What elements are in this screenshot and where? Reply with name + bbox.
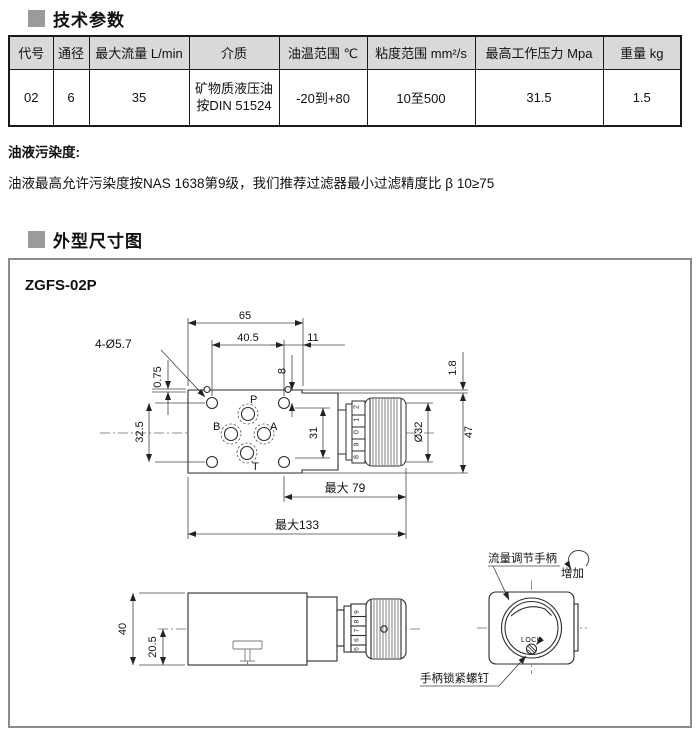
increase-direction-arrow [568, 550, 588, 569]
dim-40-5: 40.5 [237, 332, 258, 344]
svg-text:5: 5 [354, 647, 361, 651]
lock-label: LOCK [521, 637, 542, 644]
table-header-row: 代号 通径 最大流量 L/min 介质 油温范围 ℃ 粘度范围 mm²/s 最高… [9, 36, 681, 69]
header-cell-maxflow: 最大流量 L/min [89, 36, 189, 69]
port-p-label: P [250, 394, 257, 406]
svg-text:8: 8 [354, 619, 361, 623]
section-header-params: 技术参数 [28, 6, 125, 31]
contamination-note: 油液污染度: 油液最高允许污染度按NAS 1638第9级，我们推荐过滤器最小过滤… [8, 141, 668, 192]
svg-text:2: 2 [354, 405, 361, 409]
side-view-drawing: 9 8 7 6 5 40 20.5 [117, 593, 420, 665]
dim-8: 8 [277, 368, 289, 374]
header-cell-diameter: 通径 [53, 36, 89, 69]
svg-text:1: 1 [354, 417, 361, 421]
dim-32-5: 32.5 [134, 421, 146, 442]
handle-front [489, 592, 578, 664]
increase-label: 增加 [561, 566, 584, 580]
port-t-label: T [252, 461, 259, 473]
dimension-drawing: ZGFS-02P [10, 260, 690, 726]
svg-text:8: 8 [354, 455, 361, 459]
svg-text:9: 9 [354, 442, 361, 446]
header-cell-viscosity: 粘度范围 mm²/s [367, 36, 475, 69]
front-view-drawing: LOCK 流量调节手柄 增加 手柄锁紧螺钉 [420, 550, 589, 686]
value-cell-weight: 1.5 [603, 69, 681, 126]
top-view-drawing: 2 1 0 9 8 [95, 310, 475, 539]
svg-text:0: 0 [354, 430, 361, 434]
dim-65: 65 [239, 310, 251, 322]
datasheet-page: 技术参数 代号 通径 最大流量 L/min 介质 油温范围 ℃ 粘度范围 mm²… [0, 0, 700, 742]
section-bullet-icon [28, 231, 45, 248]
header-cell-code: 代号 [9, 36, 53, 69]
dim-31: 31 [308, 427, 320, 439]
valve-body-side [188, 593, 406, 665]
section-header-dimensions: 外型尺寸图 [28, 227, 143, 252]
contamination-note-text: 油液最高允许污染度按NAS 1638第9级，我们推荐过滤器最小过滤精度比 β 1… [8, 172, 668, 192]
header-cell-oiltemp: 油温范围 ℃ [279, 36, 367, 69]
port-a-label: A [270, 421, 278, 433]
contamination-note-title: 油液污染度: [8, 141, 668, 161]
svg-text:7: 7 [354, 628, 361, 632]
dim-40: 40 [117, 623, 129, 635]
dim-11: 11 [307, 332, 318, 344]
header-cell-medium: 介质 [189, 36, 279, 69]
port-b-label: B [213, 421, 220, 433]
lock-screw-callout-label: 手柄锁紧螺钉 [420, 671, 489, 685]
value-cell-medium: 矿物质液压油 按DIN 51524 [189, 69, 279, 126]
dim-dia-32: Ø32 [413, 422, 425, 443]
parameters-table: 代号 通径 最大流量 L/min 介质 油温范围 ℃ 粘度范围 mm²/s 最高… [8, 35, 682, 127]
dim-max-133: 最大133 [275, 518, 319, 532]
value-cell-code: 02 [9, 69, 53, 126]
handle-callout-label: 流量调节手柄 [488, 551, 557, 565]
value-cell-diameter: 6 [53, 69, 89, 126]
section-title: 技术参数 [53, 6, 125, 31]
table-data-row: 02 6 35 矿物质液压油 按DIN 51524 -20到+80 10至500… [9, 69, 681, 126]
header-cell-weight: 重量 kg [603, 36, 681, 69]
dim-20-5: 20.5 [147, 636, 159, 657]
dim-47: 47 [463, 426, 475, 438]
dim-4-holes: 4-Ø5.7 [95, 337, 132, 351]
dimension-drawing-box: ZGFS-02P [8, 258, 692, 728]
value-cell-maxpressure: 31.5 [475, 69, 603, 126]
dimension-labels-side: 40 20.5 [117, 623, 159, 658]
section-bullet-icon [28, 10, 45, 27]
value-cell-oiltemp: -20到+80 [279, 69, 367, 126]
dim-0-75: 0.75 [152, 366, 164, 387]
dim-1-8: 1.8 [447, 360, 459, 375]
header-cell-maxpressure: 最高工作压力 Mpa [475, 36, 603, 69]
svg-text:6: 6 [354, 638, 361, 642]
value-cell-maxflow: 35 [89, 69, 189, 126]
adjust-knob-top [338, 398, 406, 466]
section-title: 外型尺寸图 [53, 227, 143, 252]
model-number: ZGFS-02P [25, 277, 97, 294]
value-cell-viscosity: 10至500 [367, 69, 475, 126]
dim-max-79: 最大 79 [325, 481, 366, 495]
svg-text:9: 9 [354, 610, 361, 614]
